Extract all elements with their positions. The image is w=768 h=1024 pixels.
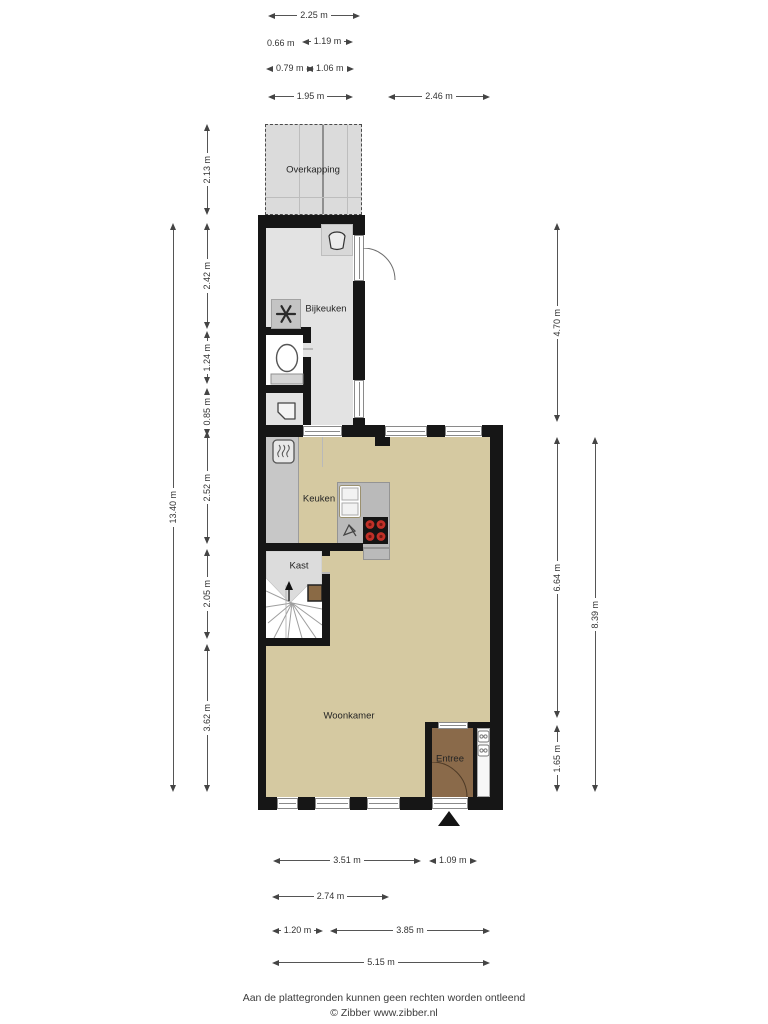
footer-copyright: © Zibber www.zibber.nl xyxy=(0,1006,768,1021)
room-label-entree: Entree xyxy=(436,754,464,765)
double-sink-icon xyxy=(339,485,361,518)
wall-kast-bottom xyxy=(258,638,330,646)
dim-right-839: 8.39 m xyxy=(589,437,601,792)
wall-toilet-right xyxy=(303,357,311,393)
room-label-kast: Kast xyxy=(289,561,308,572)
door-arc-icon xyxy=(362,248,396,282)
dim-left-213: 2.13 m xyxy=(201,124,213,215)
window xyxy=(277,798,298,809)
dim-right-470: 4.70 m xyxy=(551,223,563,422)
wall-right xyxy=(490,425,503,810)
wall-kast-top xyxy=(266,543,363,551)
kitchen-island-pedestal xyxy=(363,548,390,560)
dim-right-165: 1.65 m xyxy=(551,725,563,792)
dim-left-242: 2.42 m xyxy=(201,223,213,329)
dim-top-225: 2.25 m xyxy=(268,10,360,21)
washbasin-icon xyxy=(321,224,353,256)
window xyxy=(354,380,364,418)
room-label-overkapping: Overkapping xyxy=(286,165,340,176)
room-label-keuken: Keuken xyxy=(303,494,335,505)
wall-facade xyxy=(266,425,303,437)
toilet-icon xyxy=(270,339,304,385)
wall-entree-left xyxy=(425,722,432,797)
front-door-opening xyxy=(432,798,468,809)
faucet-icon xyxy=(341,521,359,539)
wall-toilet-right xyxy=(303,335,311,343)
roof-line xyxy=(347,125,348,214)
floorplan-canvas: Overkapping Bijkeuken Keuken Kast Woonka… xyxy=(0,0,768,1024)
wall-facade xyxy=(342,425,385,437)
extractor-fan-icon xyxy=(271,299,301,329)
kast-door-leaf xyxy=(322,572,330,574)
wall-entree-top xyxy=(425,722,438,728)
dim-bottom-109: 1.09 m xyxy=(429,855,470,866)
wall-kast-right xyxy=(322,543,330,556)
dim-bottom-385: 3.85 m xyxy=(330,925,490,936)
footer-disclaimer: Aan de plattegronden kunnen geen rechten… xyxy=(0,991,768,1006)
window xyxy=(445,426,482,436)
stairs-landing xyxy=(308,585,322,601)
window xyxy=(303,426,342,436)
room-label-bijkeuken: Bijkeuken xyxy=(305,304,346,315)
wall-left xyxy=(258,215,266,810)
dim-left-085: 0.85 m xyxy=(201,388,213,427)
wall-kast-right xyxy=(322,574,330,646)
wall-bottom xyxy=(350,797,367,810)
dim-bottom-515: 5.15 m xyxy=(272,957,490,968)
wall-bottom xyxy=(468,797,503,810)
boiler-icon xyxy=(272,439,295,464)
window xyxy=(385,426,427,436)
wall-toilet-mid xyxy=(266,385,303,393)
dim-top-246: 2.46 m xyxy=(388,91,490,102)
dim-top-079: 0.79 m xyxy=(266,63,303,74)
dim-top-119: 1.19 m xyxy=(302,36,353,47)
dim-left-362: 3.62 m xyxy=(201,644,213,792)
room-label-woonkamer: Woonkamer xyxy=(323,711,374,722)
dim-top-195: 1.95 m xyxy=(268,91,353,102)
window xyxy=(315,798,350,809)
corner-sink-icon xyxy=(275,400,299,422)
dim-bottom-351: 3.51 m xyxy=(273,855,421,866)
dim-left-124: 1.24 m xyxy=(201,331,213,384)
wall-ext-right xyxy=(353,215,365,235)
dim-left-1340: 13.40 m xyxy=(167,223,179,792)
entrance-marker-icon xyxy=(438,811,460,826)
witness-line xyxy=(322,437,323,467)
wall-pillar xyxy=(375,437,390,446)
window xyxy=(367,798,400,809)
wall-ext-right xyxy=(353,281,365,380)
entree-inner-opening xyxy=(438,722,468,729)
dim-top-106: 1.06 m xyxy=(306,63,353,74)
cooktop-icon xyxy=(363,517,388,544)
wall-basin-right xyxy=(303,393,311,425)
dim-left-205: 2.05 m xyxy=(201,549,213,639)
roof-line xyxy=(266,197,361,198)
meter-cupboard-icon xyxy=(477,730,491,760)
wall-bottom xyxy=(400,797,432,810)
door-arc-icon xyxy=(432,762,468,798)
wall-bottom xyxy=(298,797,315,810)
wall-bottom xyxy=(258,797,277,810)
dim-bottom-274: 2.74 m xyxy=(272,891,389,902)
dim-left-252: 2.52 m xyxy=(201,431,213,544)
toilet-door-leaf xyxy=(303,348,313,350)
footer: Aan de plattegronden kunnen geen rechten… xyxy=(0,991,768,1020)
dim-bottom-120: 1.20 m xyxy=(272,925,323,936)
dim-top-066: 0.66 m xyxy=(267,38,295,48)
wall-facade xyxy=(427,425,445,437)
wall-entree-top xyxy=(468,722,490,728)
dim-right-664: 6.64 m xyxy=(551,437,563,718)
